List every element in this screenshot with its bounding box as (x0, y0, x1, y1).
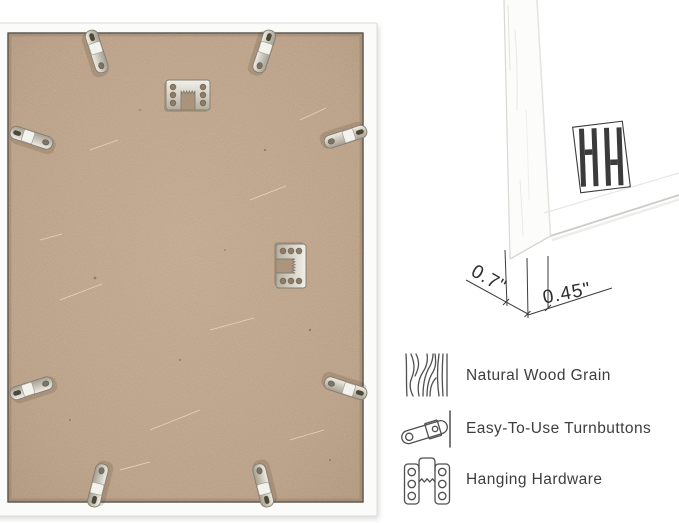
face-dimension-label: 0.45" (541, 279, 593, 309)
sawtooth-hanger-side (274, 242, 306, 288)
feature-label-turnbuttons: Easy-To-Use Turnbuttons (466, 419, 651, 439)
turnbutton-icon (398, 408, 456, 450)
sawtooth-hanger-top (164, 80, 210, 112)
hanging-hardware-icon (402, 455, 452, 507)
product-image: 0.7" 0.45" Natural Wood Grain (0, 0, 679, 523)
frame-face-panel (537, 0, 679, 236)
frame-corner-detail: 0.7" 0.45" (440, 0, 679, 340)
wood-grain-icon (403, 352, 449, 398)
feature-label-hanging-hardware: Hanging Hardware (466, 470, 602, 490)
feature-label-wood-grain: Natural Wood Grain (466, 366, 611, 386)
frame-back-photo (0, 0, 390, 523)
